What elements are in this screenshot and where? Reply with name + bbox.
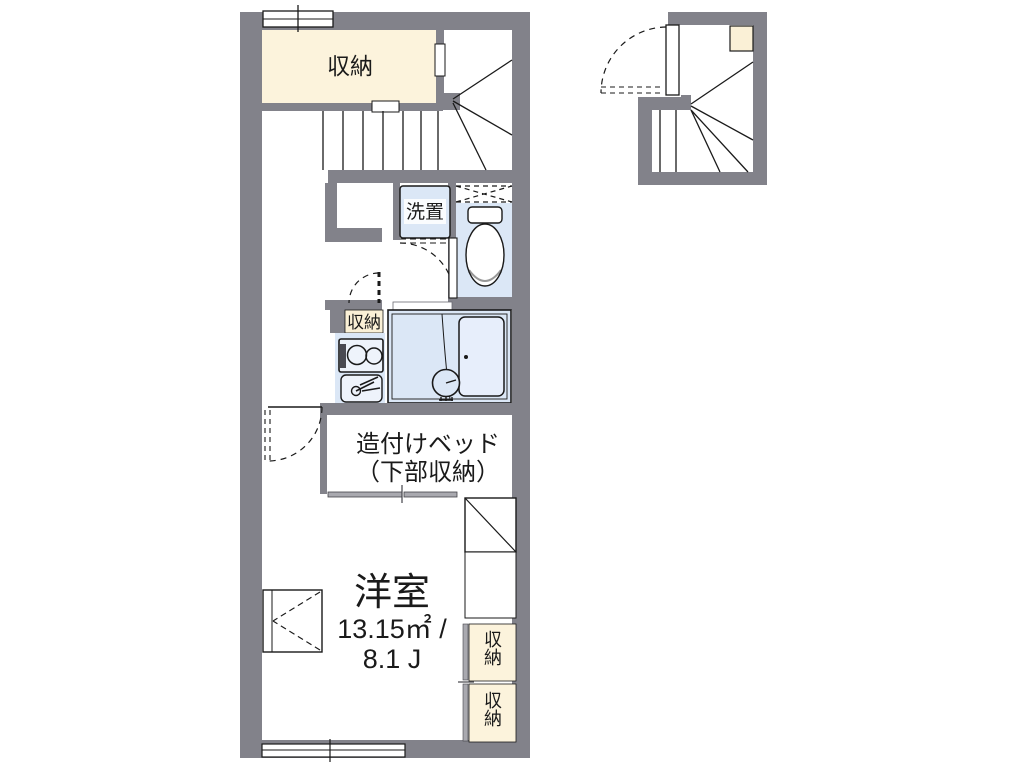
meter-box	[730, 26, 753, 51]
washer-space: 洗置	[400, 186, 450, 238]
stairwell-newel-post	[681, 95, 691, 110]
wall-bed-left	[320, 403, 327, 494]
bathroom	[388, 310, 511, 403]
washer-label: 洗置	[406, 201, 444, 223]
wall-under-storage	[262, 103, 443, 111]
entry-stairs-diagram	[601, 12, 767, 185]
hall-door	[349, 272, 379, 303]
stairwell-wall-bottom	[638, 172, 767, 185]
toilet-icon	[466, 207, 504, 286]
wall-closet-stub	[330, 310, 345, 333]
wall-left	[240, 12, 262, 758]
main-room-area-sqm: 13.15㎡ /	[337, 614, 447, 644]
stair-top-opening	[372, 101, 399, 112]
stairwell-wall-top	[668, 12, 767, 25]
counter-space	[465, 552, 516, 618]
bed-label-line2: （下部収納）	[356, 459, 500, 486]
entry-door	[601, 25, 679, 95]
floor-plan-page: 収納	[0, 0, 1016, 772]
door-opening-storage	[435, 44, 445, 76]
stove-icon	[339, 339, 383, 372]
stairwell-wall-stub	[638, 97, 688, 110]
sink-faucet-icon	[341, 375, 382, 402]
closet-right-upper-label: 収納	[482, 630, 502, 666]
stairs-winder	[453, 60, 512, 170]
main-room: 洋室 13.15㎡ / 8.1 J	[337, 572, 447, 674]
wall-under-toilet	[448, 297, 517, 310]
wall-bed-top	[320, 403, 517, 415]
closet-right-upper: 収納	[463, 624, 516, 681]
wall-closet-top	[325, 300, 382, 310]
storage-small-label: 収納	[347, 313, 381, 332]
room-entry-door	[265, 407, 322, 462]
closet-folding-door	[263, 590, 322, 652]
main-room-name: 洋室	[354, 572, 430, 614]
stairs-straight	[323, 111, 438, 170]
bed-label-line1: 造付けベッド	[356, 431, 500, 458]
wall-hall-vert	[325, 183, 337, 242]
wall-under-stairs	[328, 170, 517, 183]
wall-hall-horiz	[337, 228, 382, 242]
floor-plan-drawing: 収納	[0, 0, 1016, 772]
storage-top-label: 収納	[327, 53, 373, 79]
wall-washer-left	[393, 183, 400, 240]
main-unit-plan: 収納	[240, 5, 530, 762]
washroom-door	[400, 238, 457, 298]
refrigerator-space	[465, 498, 516, 552]
closet-right-lower-label: 収納	[482, 691, 502, 727]
closet-right-lower: 収納	[463, 684, 516, 742]
stairwell-wall-right	[753, 12, 767, 185]
main-room-area-jo: 8.1 J	[363, 644, 422, 674]
bed-sliding-doors	[328, 485, 457, 503]
stairwell-wall-left	[638, 97, 652, 185]
window-toilet-x	[456, 186, 512, 202]
kitchen	[335, 333, 385, 405]
